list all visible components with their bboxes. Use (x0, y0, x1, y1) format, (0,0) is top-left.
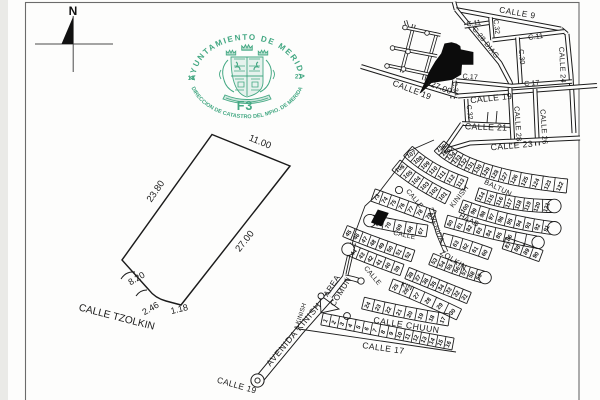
svg-text:18: 18 (188, 75, 196, 82)
svg-text:C 17: C 17 (524, 78, 540, 88)
svg-text:C.17: C.17 (462, 71, 478, 81)
svg-text:CALLE 24: CALLE 24 (557, 47, 568, 84)
svg-text:21: 21 (295, 74, 303, 81)
svg-text:C.30: C.30 (517, 49, 528, 65)
svg-text:N: N (69, 4, 78, 18)
svg-text:CALLE 21: CALLE 21 (465, 121, 508, 132)
